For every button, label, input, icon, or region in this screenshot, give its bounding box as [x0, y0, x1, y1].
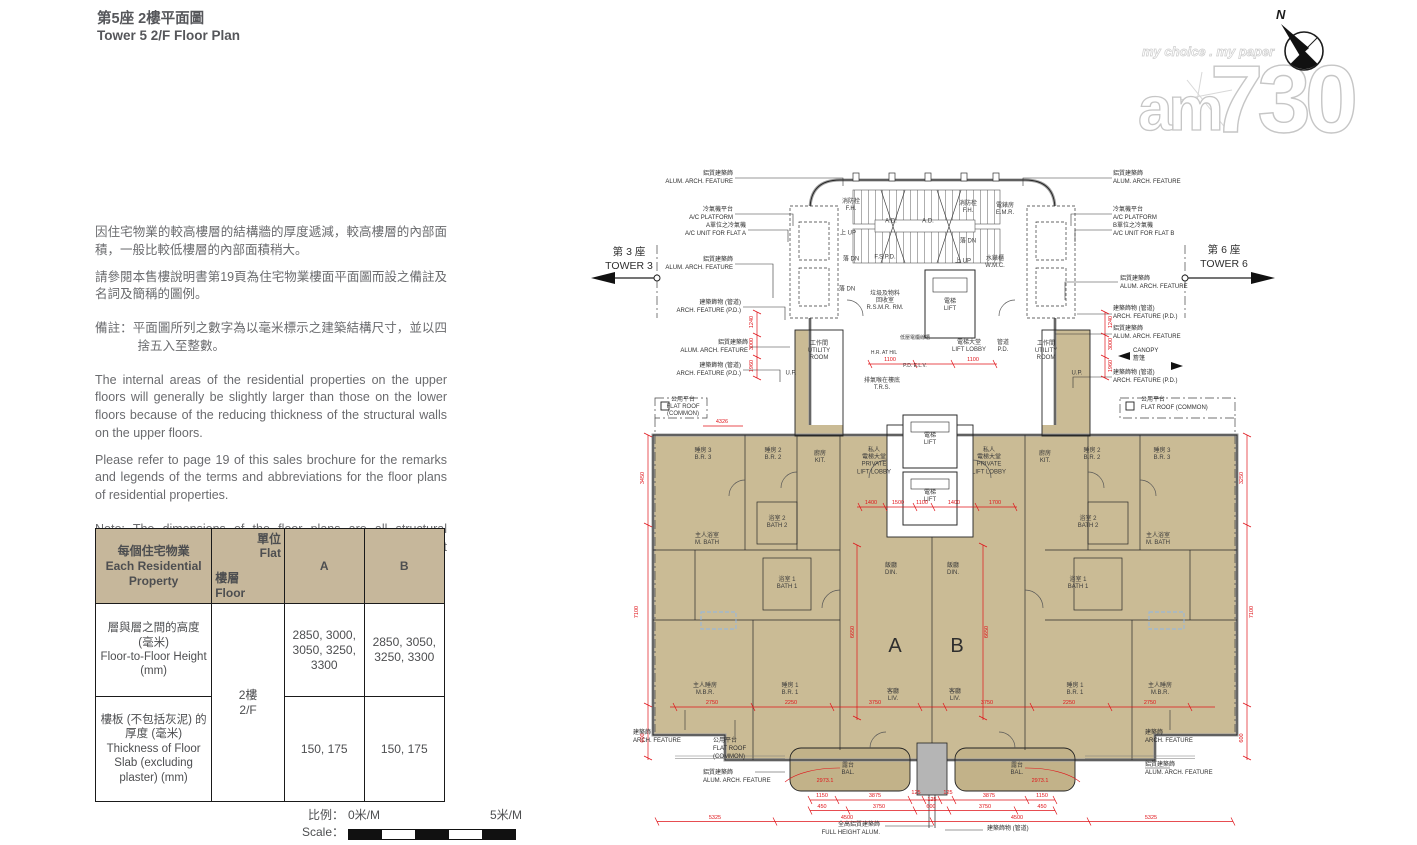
spec-header-floor: 樓層 Floor [215, 571, 245, 600]
spec-row2-label: 樓板 (不包括灰泥) 的厚度 (毫米) Thickness of Floor S… [96, 697, 212, 802]
dim-b2-3: 3750 [979, 804, 991, 810]
co-en: ALUM. ARCH. FEATURE [1113, 334, 1248, 342]
l-en: DN [847, 286, 856, 292]
co-zh: 鋁質建築飾 [603, 257, 733, 265]
room-mbr-b: 主人睡房M.B.R. [1148, 683, 1172, 697]
co-common: (COMMON) [713, 754, 773, 762]
dim-curve-left: 2973.1 [817, 778, 834, 784]
fr-common: (COMMON) [666, 412, 699, 419]
room-private-lift-lobby-a: 私人 電梯大堂 PRIVATE LIFT LOBBY [857, 448, 891, 477]
room-wmc: 水錶櫃W.M.C. [985, 256, 1005, 270]
room-br2-b: 睡房 2B.R. 2 [1083, 448, 1100, 462]
room-rsmr: 垃圾及物料 回收室 R.S.M.R. RM. [867, 291, 904, 313]
co-en: FLAT ROOF (COMMON) [1141, 405, 1241, 413]
floor-plan: 第 3 座 TOWER 3 第 6 座 TOWER 6 鋁質建築飾ALUM. A… [585, 150, 1300, 845]
room-pd-elv: P.D. E.L.V. [903, 363, 927, 369]
dim-rc-0: 1100 [884, 357, 896, 363]
dim-b1-1: 3875 [869, 793, 881, 799]
dim-right-0: 3250 [1239, 472, 1245, 484]
callout-ac-platform-right: 冷氣機平台A/C PLATFORM [1113, 207, 1248, 223]
spec-header-flat-a: A [284, 529, 364, 604]
room-br1-b: 睡房 1B.R. 1 [1066, 683, 1083, 697]
dim-stackl-1: 3000 [749, 338, 755, 350]
room-bath1-b: 浴室 1BATH 1 [1068, 577, 1089, 591]
l-en: PRIVATE [857, 462, 891, 469]
callout-alum-arch-feature-r2: 鋁質建築飾ALUM. ARCH. FEATURE [1120, 276, 1255, 292]
co-zh: 鋁質建築飾 [1113, 326, 1248, 334]
l-zh: 睡房 1 [781, 683, 798, 690]
l-zh: 睡房 1 [1066, 683, 1083, 690]
l-zh2: 電梯大堂 [972, 455, 1006, 462]
room-lift-core: 電梯LIFT [944, 299, 956, 313]
l-en: P.D. [997, 347, 1009, 354]
north-arrow-icon: N [1268, 4, 1334, 84]
co-en: ALUM. ARCH. FEATURE [1113, 179, 1248, 187]
l-zh: 廚房 [1039, 451, 1051, 458]
l-en: E.M.R. [996, 210, 1014, 217]
spec-row2-a: 150, 175 [284, 697, 364, 802]
callout-alum-arch-feature-tr: 鋁質建築飾ALUM. ARCH. FEATURE [1113, 171, 1248, 187]
fr-zh: 公用平台 [666, 397, 699, 404]
co-en: A/C PLATFORM [1113, 215, 1248, 223]
co-zh: 建築飾 [1145, 730, 1225, 738]
room-kit-a: 廚房KIT. [814, 451, 826, 465]
co-zh: 全高鋁質建築飾 [780, 822, 880, 830]
flat-zh: 單位 [257, 532, 281, 546]
room-private-lift-lobby-b: 私人 電梯大堂 PRIVATE LIFT LOBBY [972, 448, 1006, 477]
room-bal-a: 露台BAL. [841, 763, 854, 777]
l-en: BATH 2 [767, 523, 788, 530]
co-zh: 建築飾物 (管道) [611, 363, 741, 371]
callout-arch-feature-pd-r2: 建築飾物 (管道)ARCH. FEATURE (P.D.) [1113, 370, 1248, 386]
l-en: KIT. [1039, 458, 1051, 465]
room-lift-lobby: 電梯大堂LIFT LOBBY [952, 340, 986, 354]
room-bath1-a: 浴室 1BATH 1 [777, 577, 798, 591]
scale-bar: 比例： 0米/M 5米/M Scale： [280, 806, 516, 840]
tower6-label: 第 6 座 TOWER 6 [1189, 244, 1259, 271]
co-en: ARCH. FEATURE [1145, 738, 1225, 746]
l-zh: 睡房 2 [1083, 448, 1100, 455]
co-zh: 建築飾物 (管道) [611, 300, 741, 308]
callout-alum-arch-feature-l2: 鋁質建築飾ALUM. ARCH. FEATURE [603, 257, 733, 273]
l-zh: 工作間 [1026, 341, 1066, 348]
callout-arch-feature-pd-l2: 建築飾物 (管道)ARCH. FEATURE (P.D.) [611, 363, 741, 379]
l-zh: 睡房 3 [1153, 448, 1170, 455]
l-en: PRIVATE [972, 462, 1006, 469]
room-mbath-b: 主人浴室M. BATH [1146, 533, 1170, 547]
tower3-arrow [591, 272, 660, 284]
l-zh: 上 [955, 258, 961, 264]
room-dn-2: 落 DN [960, 238, 976, 245]
room-br3-b: 睡房 3B.R. 3 [1153, 448, 1170, 462]
room-br1-a: 睡房 1B.R. 1 [781, 683, 798, 697]
dim-b1-0: 1150 [816, 793, 828, 799]
l-zh: 排氣喉在樓底 [864, 378, 900, 385]
fr-en: FLAT ROOF [666, 404, 699, 411]
l-zh: 水錶櫃 [985, 256, 1005, 263]
dim-rb-0: 1400 [865, 500, 877, 506]
dim-b2-0: 450 [817, 804, 826, 810]
co-en: ARCH. FEATURE (P.D.) [611, 371, 741, 379]
scale-five: 5米/M [490, 806, 522, 823]
l-zh: 主人睡房 [1148, 683, 1172, 690]
floor-value-zh: 2樓 [215, 688, 281, 703]
room-utility-b: 工作間UTILITY ROOM [1026, 341, 1066, 363]
l-en: B.R. 1 [781, 690, 798, 697]
dim-ra-4: 2250 [1063, 700, 1075, 706]
dim-right-1: 7100 [1249, 606, 1255, 618]
floor-zh: 樓層 [215, 571, 245, 585]
room-ad-1: A.D. [885, 218, 897, 225]
spec-header-property-en: Each Residential Property [99, 559, 208, 589]
co-en: ALUM. ARCH. FEATURE [1120, 284, 1255, 292]
l-zh: 管道 [997, 340, 1009, 347]
callout-ac-unit-flat-b: B單位之冷氣機A/C UNIT FOR FLAT B [1113, 223, 1256, 239]
l-zh: 主人睡房 [693, 683, 717, 690]
scale-label-zh: 比例： [280, 806, 348, 823]
co-zh: 建築飾物 (管道) [1113, 306, 1248, 314]
flat-b-letter: B [950, 634, 963, 658]
dim-inner-left: 6650 [850, 626, 856, 638]
dim-b3-1: 4500 [841, 815, 853, 821]
dim-b3-0: 5325 [709, 815, 721, 821]
l-zh: 客廳 [887, 689, 899, 696]
dim-b3-3: 5325 [1145, 815, 1157, 821]
room-up-2: 上 UP [955, 258, 971, 265]
callout-alum-arch-feature-tl: 鋁質建築飾ALUM. ARCH. FEATURE [603, 171, 733, 187]
room-dn-3: 落 DN [839, 286, 855, 293]
co-zh: 鋁質建築飾 [703, 770, 793, 778]
l-en: B.R. 2 [764, 455, 781, 462]
l-en: BATH 1 [1068, 584, 1089, 591]
l-zh: 飯廳 [947, 563, 959, 570]
center-pier [917, 743, 947, 828]
am730-logo: my choice . my paper am 730 [1132, 30, 1372, 143]
flat-a-letter: A [888, 634, 901, 658]
floor-value-en: 2/F [215, 703, 281, 718]
l-zh2: 電梯大堂 [857, 455, 891, 462]
co-en: A/C UNIT FOR FLAT B [1113, 231, 1256, 239]
co-en: ALUM. ARCH. FEATURE [703, 778, 793, 786]
dim-b2-1: 3750 [873, 804, 885, 810]
dim-b1-2: 125 [911, 790, 920, 796]
spec-header-flat-b: B [364, 529, 444, 604]
north-compass: N [1268, 4, 1334, 89]
l-en: R.S.M.R. RM. [867, 306, 904, 313]
co-zh: 公用平台 [1141, 397, 1241, 405]
spec-row1-label: 層與層之間的高度 (毫米) Floor-to-Floor Height (mm) [96, 604, 212, 697]
room-pd-right: 管道P.D. [997, 340, 1009, 354]
co-zh: 建築飾物 (管道) [1113, 370, 1248, 378]
room-kit-b: 廚房KIT. [1039, 451, 1051, 465]
l-zh: 電錶房 [996, 203, 1014, 210]
l-en: T.R.S. [864, 385, 900, 392]
label-flat-roof-common-left: 公用平台 FLAT ROOF (COMMON) [666, 397, 699, 419]
spec-header-property-zh: 每個住宅物業 [99, 544, 208, 559]
dim-b3-2: 4500 [1011, 815, 1023, 821]
dim-b2-2: 600 [926, 804, 935, 810]
room-br2-a: 睡房 2B.R. 2 [764, 448, 781, 462]
l-zh: 落 [843, 256, 849, 262]
dim-rb-2: 1100 [916, 500, 928, 506]
room-up-platform-b: U.P. [1072, 370, 1083, 377]
l-zh: 消防栓 [959, 201, 977, 208]
callout-ac-unit-flat-a: A單位之冷氣機A/C UNIT FOR FLAT A [603, 223, 746, 239]
dim-b2-4: 450 [1037, 804, 1046, 810]
page-title-zh: 第5座 2樓平面圖 [97, 10, 240, 28]
l-en: F.H. [959, 208, 977, 215]
spec-header-flat-floor: 單位 Flat 樓層 Floor [212, 529, 285, 604]
co-zh: 鋁質建築飾 [1145, 762, 1235, 770]
l-en: DIN. [885, 570, 897, 577]
callout-full-height-alum: 全高鋁質建築飾FULL HEIGHT ALUM. [780, 822, 880, 838]
l-en: B.R. 3 [1153, 455, 1170, 462]
room-dn-1: 落 DN [843, 256, 859, 263]
room-hr: H.R. AT H/L [871, 350, 897, 356]
l-en: DIN. [947, 570, 959, 577]
callout-alum-arch-feature-br: 鋁質建築飾ALUM. ARCH. FEATURE [1145, 762, 1235, 778]
room-din-b: 飯廳DIN. [947, 563, 959, 577]
l-zh: 電梯大堂 [952, 340, 986, 347]
room-trs: 排氣喉在樓底T.R.S. [864, 378, 900, 392]
co-en: FLAT ROOF [713, 746, 773, 754]
callout-flat-roof-common-bottom: 公用平台 FLAT ROOF (COMMON) [713, 738, 773, 761]
page-title: 第5座 2樓平面圖 Tower 5 2/F Floor Plan [97, 10, 240, 45]
l-en: B.R. 2 [1083, 455, 1100, 462]
l-en: LIV. [949, 696, 961, 703]
l-en2: LIFT LOBBY [972, 469, 1006, 476]
row1-zh: 層與層之間的高度 (毫米) [99, 621, 208, 650]
l-en: F.H. [842, 206, 860, 213]
dim-4326: 4326 [716, 419, 728, 425]
room-emr: 電錶房E.M.R. [996, 203, 1014, 217]
co-zh: 冷氣機平台 [1113, 207, 1248, 215]
l-zh: 落 [960, 238, 966, 244]
room-private-lift-1: 電梯LIFT [924, 433, 936, 447]
room-fh-right: 消防栓F.H. [959, 201, 977, 215]
l-zh: 露台 [1010, 763, 1023, 770]
callout-arch-feature-br: 建築飾ARCH. FEATURE [1145, 730, 1225, 746]
l-zh: 露台 [841, 763, 854, 770]
room-mbath-a: 主人浴室M. BATH [695, 533, 719, 547]
label-flat-roof-common-right: 公用平台FLAT ROOF (COMMON) [1141, 397, 1241, 413]
l-en: M.B.R. [693, 690, 717, 697]
spec-row1-a: 2850, 3000, 3050, 3250, 3300 [284, 604, 364, 697]
scale-label-en: Scale： [280, 823, 348, 840]
spec-row1-b: 2850, 3050, 3250, 3300 [364, 604, 444, 697]
l-zh2: 回收室 [867, 298, 904, 305]
spec-table: 每個住宅物業 Each Residential Property 單位 Flat… [95, 528, 445, 802]
dim-stackr-2: 1960 [1108, 360, 1114, 372]
flat-en: Flat [257, 546, 281, 560]
l-zh: 主人浴室 [1146, 533, 1170, 540]
note-en-1: The internal areas of the residential pr… [95, 372, 447, 443]
scale-zero: 0米/M [348, 806, 380, 823]
callout-arch-feature-pd-bottom: 建築飾物 (管道) [987, 826, 1067, 834]
room-mbr-a: 主人睡房M.B.R. [693, 683, 717, 697]
dim-b1-4: 125 [943, 790, 952, 796]
l-zh: 消防栓 [842, 199, 860, 206]
callout-alum-arch-feature-l3: 鋁質建築飾ALUM. ARCH. FEATURE [618, 340, 748, 356]
l-en: B.R. 3 [694, 455, 711, 462]
l-zh: 電梯 [924, 490, 936, 497]
dim-ra-1: 2250 [785, 700, 797, 706]
l-zh: 落 [839, 286, 845, 292]
spec-header-flat: 單位 Flat [257, 532, 281, 561]
l-zh: 浴室 2 [767, 516, 788, 523]
l-en: UTILITY ROOM [799, 348, 839, 362]
room-bath2-b: 浴室 2BATH 2 [1078, 516, 1099, 530]
dim-ra-5: 2750 [1144, 700, 1156, 706]
l-en: UP [848, 230, 856, 236]
dim-rb-3: 1400 [948, 500, 960, 506]
room-liv-b: 客廳LIV. [949, 689, 961, 703]
callout-arch-feature-pd-l1: 建築飾物 (管道)ARCH. FEATURE (P.D.) [611, 300, 741, 316]
co-en: ARCH. FEATURE (P.D.) [611, 308, 741, 316]
co-zh: 鋁質建築飾 [1113, 171, 1248, 179]
l-zh: 睡房 3 [694, 448, 711, 455]
logo-am: am [1138, 75, 1220, 138]
co-zh: A單位之冷氣機 [603, 223, 746, 231]
co-en: ALUM. ARCH. FEATURE [618, 348, 748, 356]
callout-canopy: CANOPY簷篷 [1133, 348, 1213, 364]
co-zh: 鋁質建築飾 [603, 171, 733, 179]
callout-alum-arch-feature-r3: 鋁質建築飾ALUM. ARCH. FEATURE [1113, 326, 1248, 342]
l-zh: 浴室 1 [777, 577, 798, 584]
room-br3-a: 睡房 3B.R. 3 [694, 448, 711, 462]
dim-b1-6: 1150 [1036, 793, 1048, 799]
co-en: ALUM. ARCH. FEATURE [603, 265, 733, 273]
l-zh: 電梯 [944, 299, 956, 306]
note-zh-2: 請參閱本售樓說明書第19頁為住宅物業樓面平面圖而設之備註及名詞及簡稱的圖例。 [95, 269, 447, 305]
dim-left-0: 3450 [640, 472, 646, 484]
room-bal-b: 露台BAL. [1010, 763, 1023, 777]
l-zh: 客廳 [949, 689, 961, 696]
room-fh-left: 消防栓F.H. [842, 199, 860, 213]
l-en: DN [851, 256, 860, 262]
co-en: ARCH. FEATURE (P.D.) [1113, 378, 1248, 386]
dim-ra-0: 2750 [706, 700, 718, 706]
l-zh: 工作間 [799, 341, 839, 348]
l-en: BAL. [1010, 770, 1023, 777]
l-zh: 廚房 [814, 451, 826, 458]
am730-logo-icon: my choice . my paper am 730 [1132, 30, 1372, 138]
dim-b1-5: 3875 [983, 793, 995, 799]
co-zh: 鋁質建築飾 [1120, 276, 1255, 284]
l-en: LIV. [887, 696, 899, 703]
l-zh: 主人浴室 [695, 533, 719, 540]
co-zh: B單位之冷氣機 [1113, 223, 1256, 231]
l-zh: 上 [840, 230, 846, 236]
l-en: M. BATH [1146, 540, 1170, 547]
co-zh: 鋁質建築飾 [618, 340, 748, 348]
room-lv-trunk: 低壓電纜線槽 [900, 335, 930, 341]
spec-floor-value: 2樓 2/F [212, 604, 285, 802]
l-en: LIFT [924, 440, 936, 447]
l-en: DN [968, 238, 977, 244]
l-zh: 飯廳 [885, 563, 897, 570]
co-en: A/C PLATFORM [603, 215, 733, 223]
l-en: UP [963, 258, 971, 264]
l-en2: LIFT LOBBY [857, 469, 891, 476]
dim-stackr-1: 3000 [1108, 338, 1114, 350]
north-label: N [1276, 7, 1286, 22]
dim-left-2: 600 [640, 733, 646, 742]
tower6-en: TOWER 6 [1189, 258, 1259, 272]
note-en-2: Please refer to page 19 of this sales br… [95, 452, 447, 505]
tower6-zh: 第 6 座 [1189, 244, 1259, 258]
dim-b1-3: 125 [927, 797, 936, 803]
room-bath2-a: 浴室 2BATH 2 [767, 516, 788, 530]
co-en: ALUM. ARCH. FEATURE [1145, 770, 1235, 778]
dim-stackl-2: 1960 [749, 360, 755, 372]
l-en: LIFT LOBBY [952, 347, 986, 354]
co-en: ALUM. ARCH. FEATURE [603, 179, 733, 187]
dim-stackr-0: 1240 [1108, 316, 1114, 328]
dim-ra-2: 3750 [869, 700, 881, 706]
l-en: W.M.C. [985, 263, 1005, 270]
callout-arch-feature-pd-r1: 建築飾物 (管道)ARCH. FEATURE (P.D.) [1113, 306, 1248, 322]
l-en: BAL. [841, 770, 854, 777]
dim-rc-1: 1100 [967, 357, 979, 363]
dim-inner-right: 6650 [984, 626, 990, 638]
co-en: A/C UNIT FOR FLAT A [603, 231, 746, 239]
row1-en: Floor-to-Floor Height (mm) [99, 650, 208, 679]
note-zh-1: 因住宅物業的較高樓層的結構牆的厚度遞減，較高樓層的內部面積，一般比較低樓層的內部… [95, 224, 447, 260]
room-up-platform-a: U.P. [786, 370, 797, 377]
spec-row2-b: 150, 175 [364, 697, 444, 802]
l-zh: 電梯 [924, 433, 936, 440]
l-en: UTILITY ROOM [1026, 348, 1066, 362]
callout-ac-platform-left: 冷氣機平台A/C PLATFORM [603, 207, 733, 223]
room-fspd: F.S.P.D. [874, 254, 895, 261]
l-zh: 浴室 1 [1068, 577, 1089, 584]
dim-left-1: 7100 [634, 606, 640, 618]
dim-stackl-0: 1240 [749, 316, 755, 328]
brochure-page: 第5座 2樓平面圖 Tower 5 2/F Floor Plan my choi… [0, 0, 1417, 845]
l-en: BATH 1 [777, 584, 798, 591]
dim-rb-1: 1500 [892, 500, 904, 506]
co-zh: 公用平台 [713, 738, 773, 746]
co-zh: 冷氣機平台 [603, 207, 733, 215]
room-ad-2: A.D. [922, 218, 934, 225]
scale-bar-segments [348, 829, 516, 840]
note-zh-remark: 備註：平面圖所列之數字為以毫米標示之建築結構尺寸，並以四捨五入至整數。 [95, 320, 447, 356]
page-title-en: Tower 5 2/F Floor Plan [97, 28, 240, 45]
co-zh: 簷篷 [1133, 356, 1213, 364]
room-din-a: 飯廳DIN. [885, 563, 897, 577]
l-en: M. BATH [695, 540, 719, 547]
l-en: KIT. [814, 458, 826, 465]
dim-curve-right: 2973.1 [1032, 778, 1049, 784]
row2-en: Thickness of Floor Slab (excluding plast… [99, 742, 208, 785]
l-zh: 浴室 2 [1078, 516, 1099, 523]
spec-header-property: 每個住宅物業 Each Residential Property [96, 529, 212, 604]
l-en: B.R. 1 [1066, 690, 1083, 697]
room-utility-a: 工作間UTILITY ROOM [799, 341, 839, 363]
callout-alum-arch-feature-bl: 鋁質建築飾ALUM. ARCH. FEATURE [703, 770, 793, 786]
room-liv-a: 客廳LIV. [887, 689, 899, 703]
co-en: FULL HEIGHT ALUM. [780, 830, 880, 838]
co-en: ARCH. FEATURE (P.D.) [1113, 314, 1248, 322]
row2-zh: 樓板 (不包括灰泥) 的厚度 (毫米) [99, 713, 208, 742]
dim-ra-3: 3750 [981, 700, 993, 706]
room-up-1: 上 UP [840, 230, 856, 237]
l-en: LIFT [944, 306, 956, 313]
co-en: CANOPY [1133, 348, 1213, 356]
l-en: M.B.R. [1148, 690, 1172, 697]
dim-rb-4: 1700 [989, 500, 1001, 506]
